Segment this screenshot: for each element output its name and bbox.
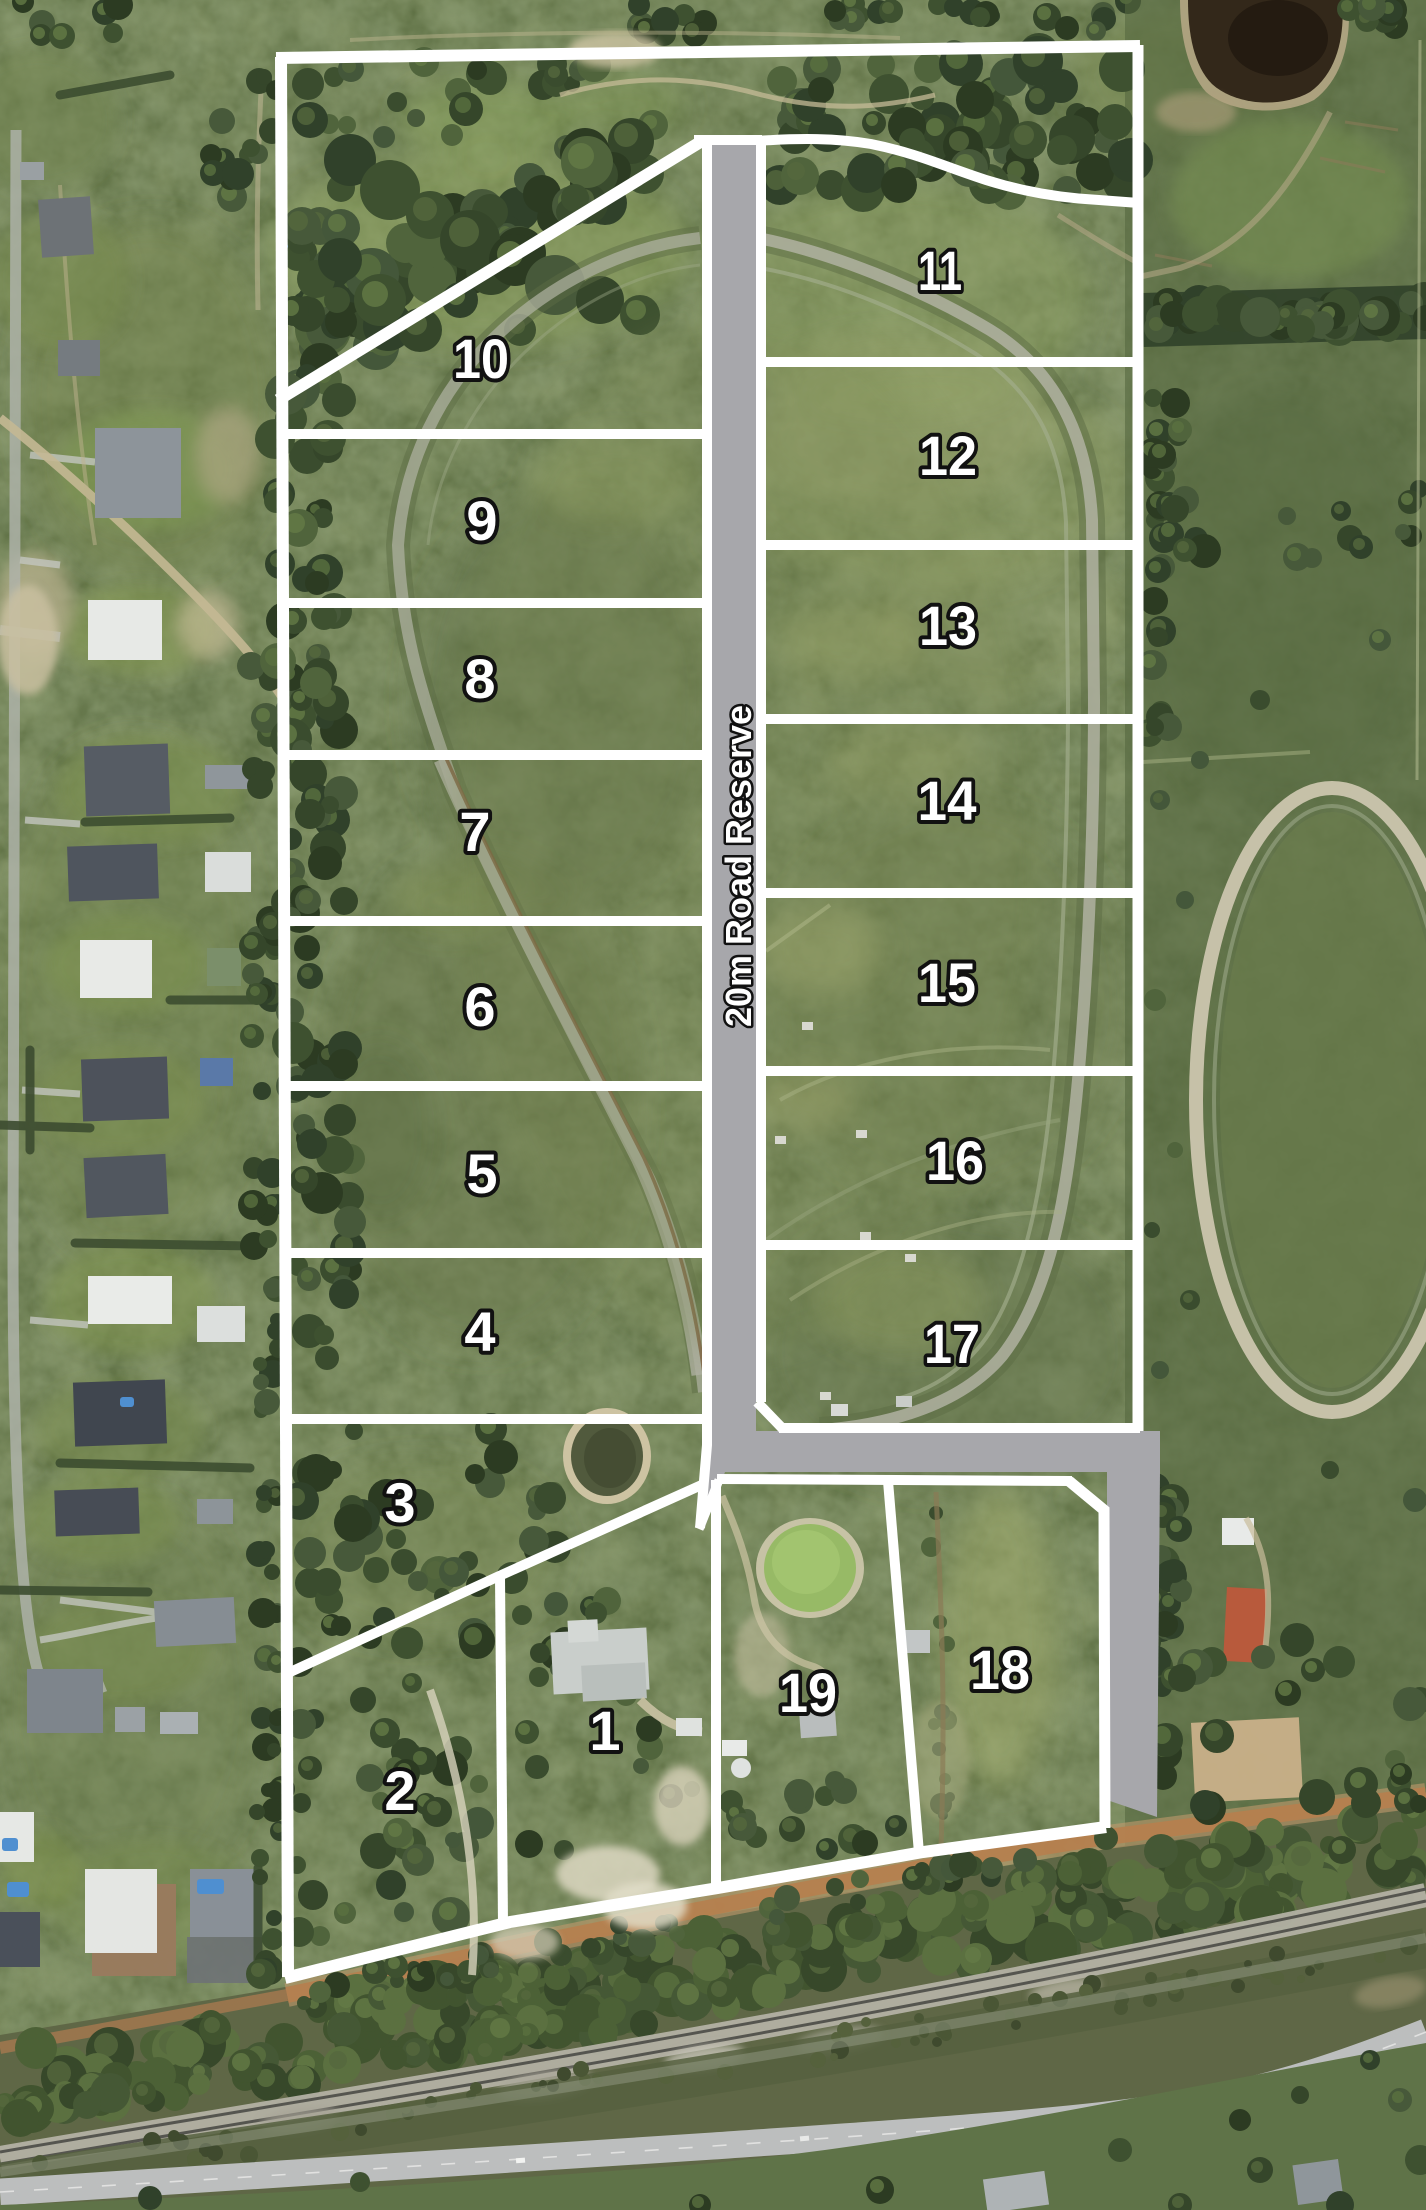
svg-text:11: 11 — [918, 239, 962, 302]
svg-text:19: 19 — [779, 1661, 837, 1724]
svg-text:2: 2 — [384, 1759, 415, 1822]
svg-text:10: 10 — [453, 327, 509, 390]
svg-text:5: 5 — [466, 1142, 497, 1205]
svg-text:14: 14 — [918, 769, 977, 832]
svg-text:15: 15 — [918, 951, 976, 1014]
svg-text:1: 1 — [589, 1699, 620, 1762]
svg-text:13: 13 — [919, 594, 977, 657]
svg-text:9: 9 — [466, 489, 497, 552]
svg-text:16: 16 — [926, 1129, 984, 1192]
svg-text:8: 8 — [464, 647, 495, 710]
svg-text:4: 4 — [464, 1300, 495, 1363]
svg-text:3: 3 — [384, 1471, 415, 1534]
svg-text:20m Road Reserve: 20m Road Reserve — [718, 705, 759, 1027]
svg-text:17: 17 — [924, 1312, 980, 1375]
svg-text:18: 18 — [970, 1638, 1030, 1701]
svg-text:7: 7 — [459, 800, 490, 863]
svg-text:12: 12 — [919, 424, 977, 487]
svg-text:6: 6 — [464, 975, 495, 1038]
